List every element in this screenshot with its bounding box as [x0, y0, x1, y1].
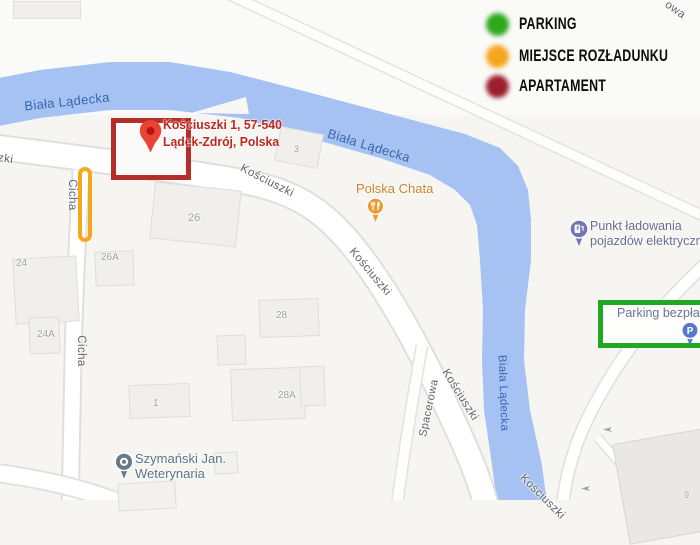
legend-row-apartment: APARTAMENT — [486, 74, 635, 98]
building — [128, 383, 190, 419]
svg-text:P: P — [687, 326, 694, 337]
building-number: 3 — [294, 144, 299, 154]
building — [299, 366, 325, 407]
ev-charging-label-line2[interactable]: pojazdów elektrycznych — [590, 234, 700, 249]
building — [258, 298, 319, 338]
building — [117, 481, 176, 512]
parking-label[interactable]: Parking bezpłatny — [617, 306, 700, 321]
building-number: 26A — [101, 252, 119, 263]
legend-label: MIEJSCE ROZŁADUNKU — [519, 47, 668, 66]
legend-row-parking: PARKING — [486, 12, 596, 36]
building-number: 28 — [276, 310, 287, 321]
building — [216, 335, 246, 366]
legend-label: APARTAMENT — [519, 77, 606, 96]
street-label-cicha-2: Cicha — [75, 316, 87, 386]
destination-pin-icon[interactable] — [138, 119, 163, 153]
unloading-legend-dot-icon — [486, 45, 509, 68]
building-number: 26 — [188, 212, 200, 224]
address-line1: Kościuszki 1, 57-540 — [163, 116, 282, 133]
road-spacerowa — [396, 346, 422, 500]
vet-label-line2[interactable]: Weterynaria — [135, 466, 205, 481]
building-number: 24A — [37, 329, 55, 340]
ev-charging-pin-icon[interactable] — [569, 219, 589, 247]
street-label-koscuszki-fragment: zki — [0, 152, 14, 166]
restaurant-label[interactable]: Polska Chata — [356, 181, 433, 196]
building-number: 24 — [16, 258, 27, 269]
apartment-legend-dot-icon — [486, 75, 509, 98]
ev-charging-label-line1[interactable]: Punkt ładowania — [590, 219, 682, 234]
street-label-cicha-1: Cicha — [66, 160, 78, 230]
map-screenshot: { "legend": { "items": [ {"label": "PARK… — [0, 0, 700, 500]
building-number: 9 — [684, 490, 689, 500]
restaurant-pin-icon[interactable] — [366, 197, 385, 223]
building — [13, 1, 81, 19]
unloading-spot-annotation — [78, 167, 92, 242]
building-number: 1 — [153, 398, 159, 409]
legend-label: PARKING — [519, 15, 577, 34]
legend-row-unloading: MIEJSCE ROZŁADUNKU — [486, 44, 700, 68]
parking-legend-dot-icon — [486, 13, 509, 36]
address-line2: Lądek-Zdrój, Polska — [163, 133, 282, 150]
building-number: 28A — [278, 390, 296, 401]
vet-label-line1[interactable]: Szymański Jan. — [135, 451, 226, 466]
map-canvas[interactable]: 26 26A 24 24A 28 28A 1 3 9 Kościuszki Ko… — [0, 0, 700, 500]
destination-address: Kościuszki 1, 57-540 Lądek-Zdrój, Polska — [163, 116, 282, 150]
vet-pin-icon[interactable] — [114, 452, 134, 479]
parking-pin-icon[interactable]: P — [681, 321, 699, 347]
